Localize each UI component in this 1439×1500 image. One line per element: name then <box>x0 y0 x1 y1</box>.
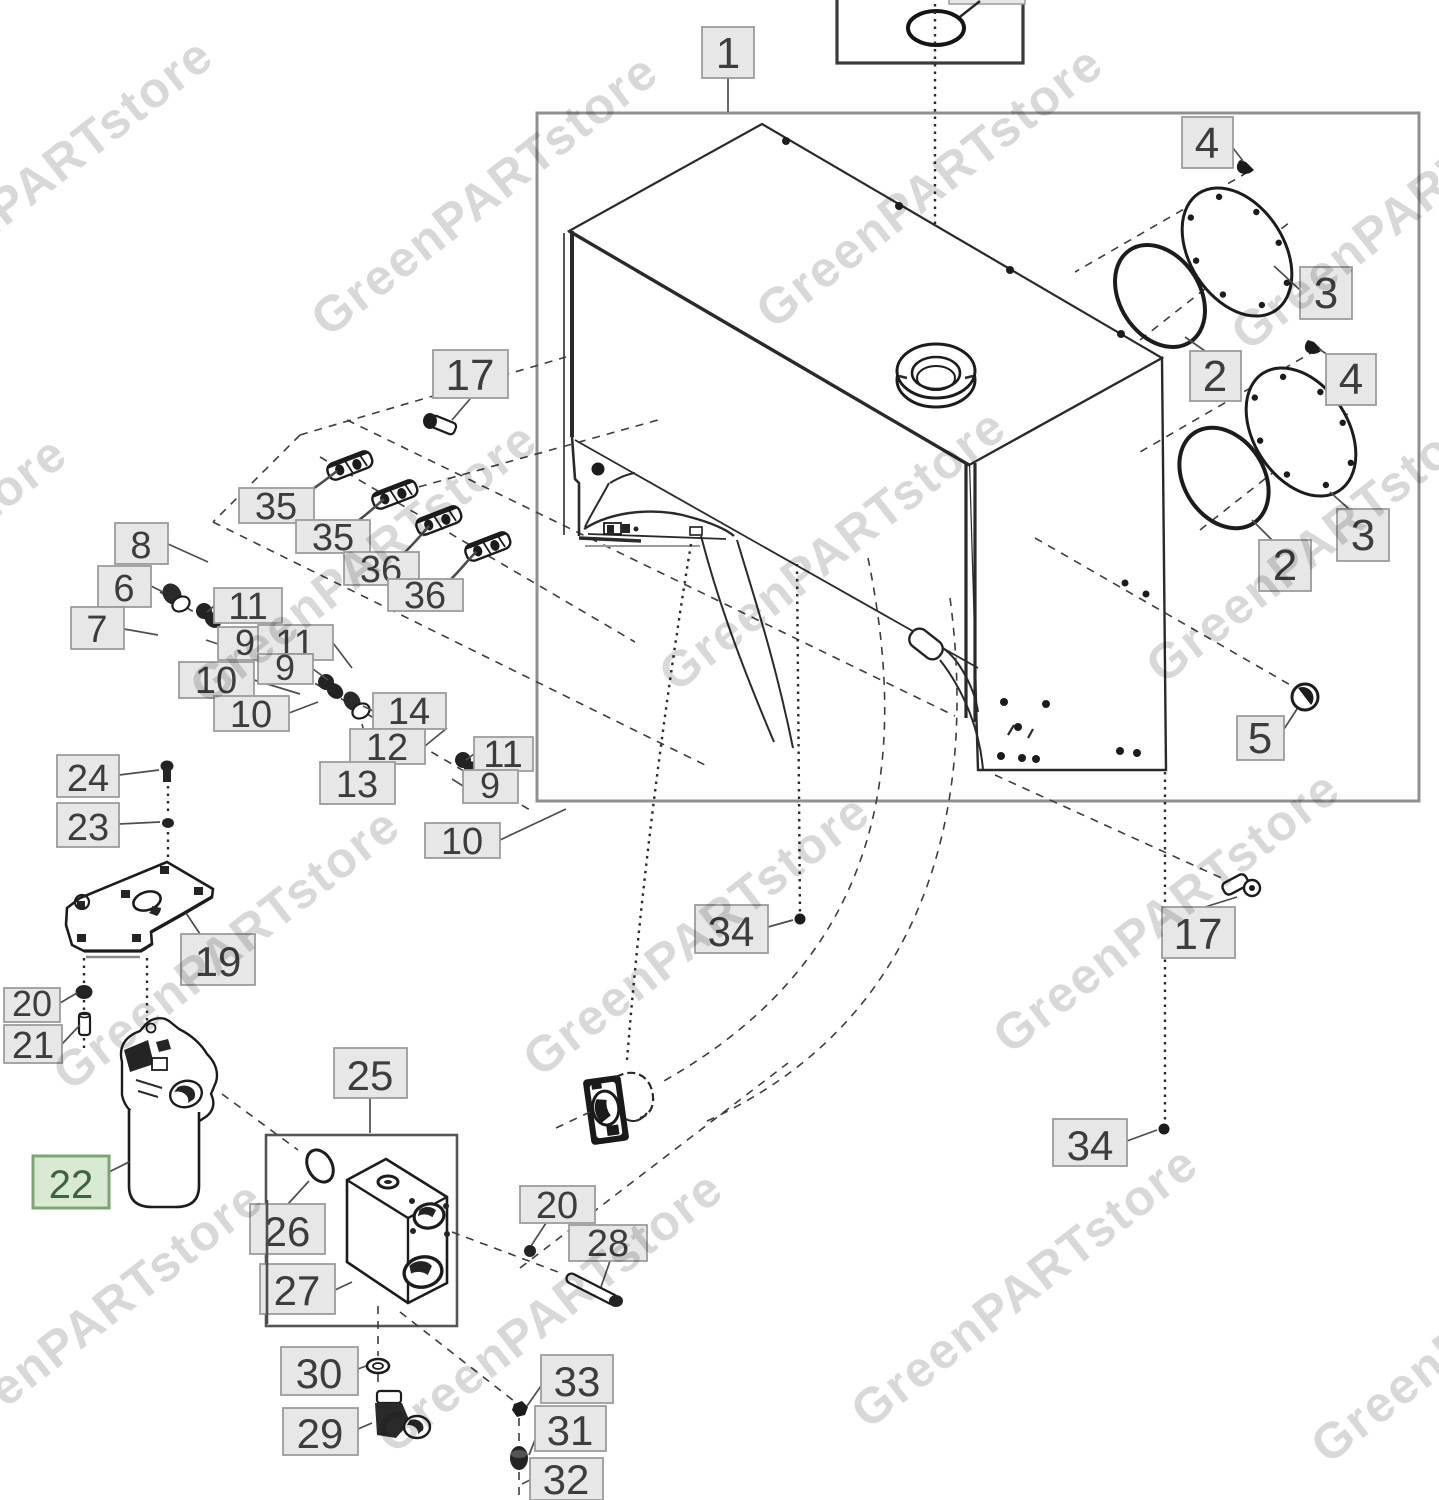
svg-text:32: 32 <box>543 1456 590 1500</box>
svg-text:36: 36 <box>404 575 446 617</box>
svg-text:33: 33 <box>554 1358 601 1405</box>
svg-text:5: 5 <box>1248 714 1272 763</box>
svg-text:9: 9 <box>480 765 500 806</box>
svg-text:24: 24 <box>67 758 109 800</box>
svg-text:8: 8 <box>130 525 151 567</box>
svg-text:7: 7 <box>86 609 107 651</box>
svg-text:20: 20 <box>536 1185 578 1227</box>
svg-text:27: 27 <box>274 1267 321 1314</box>
svg-text:29: 29 <box>297 1410 344 1457</box>
svg-text:23: 23 <box>67 807 109 849</box>
svg-text:17: 17 <box>446 351 495 400</box>
svg-text:10: 10 <box>441 821 483 863</box>
svg-text:25: 25 <box>347 1052 394 1099</box>
svg-text:4: 4 <box>1339 355 1363 404</box>
svg-text:30: 30 <box>296 1350 343 1397</box>
svg-text:10: 10 <box>230 694 272 736</box>
svg-text:6: 6 <box>113 568 134 610</box>
svg-text:34: 34 <box>1067 1122 1114 1169</box>
svg-text:20: 20 <box>12 983 52 1024</box>
svg-text:4: 4 <box>1195 119 1219 168</box>
svg-text:31: 31 <box>547 1407 594 1454</box>
svg-text:2: 2 <box>1203 352 1227 401</box>
svg-text:35: 35 <box>255 486 297 528</box>
svg-text:1: 1 <box>716 29 740 78</box>
svg-text:22: 22 <box>49 1163 94 1207</box>
